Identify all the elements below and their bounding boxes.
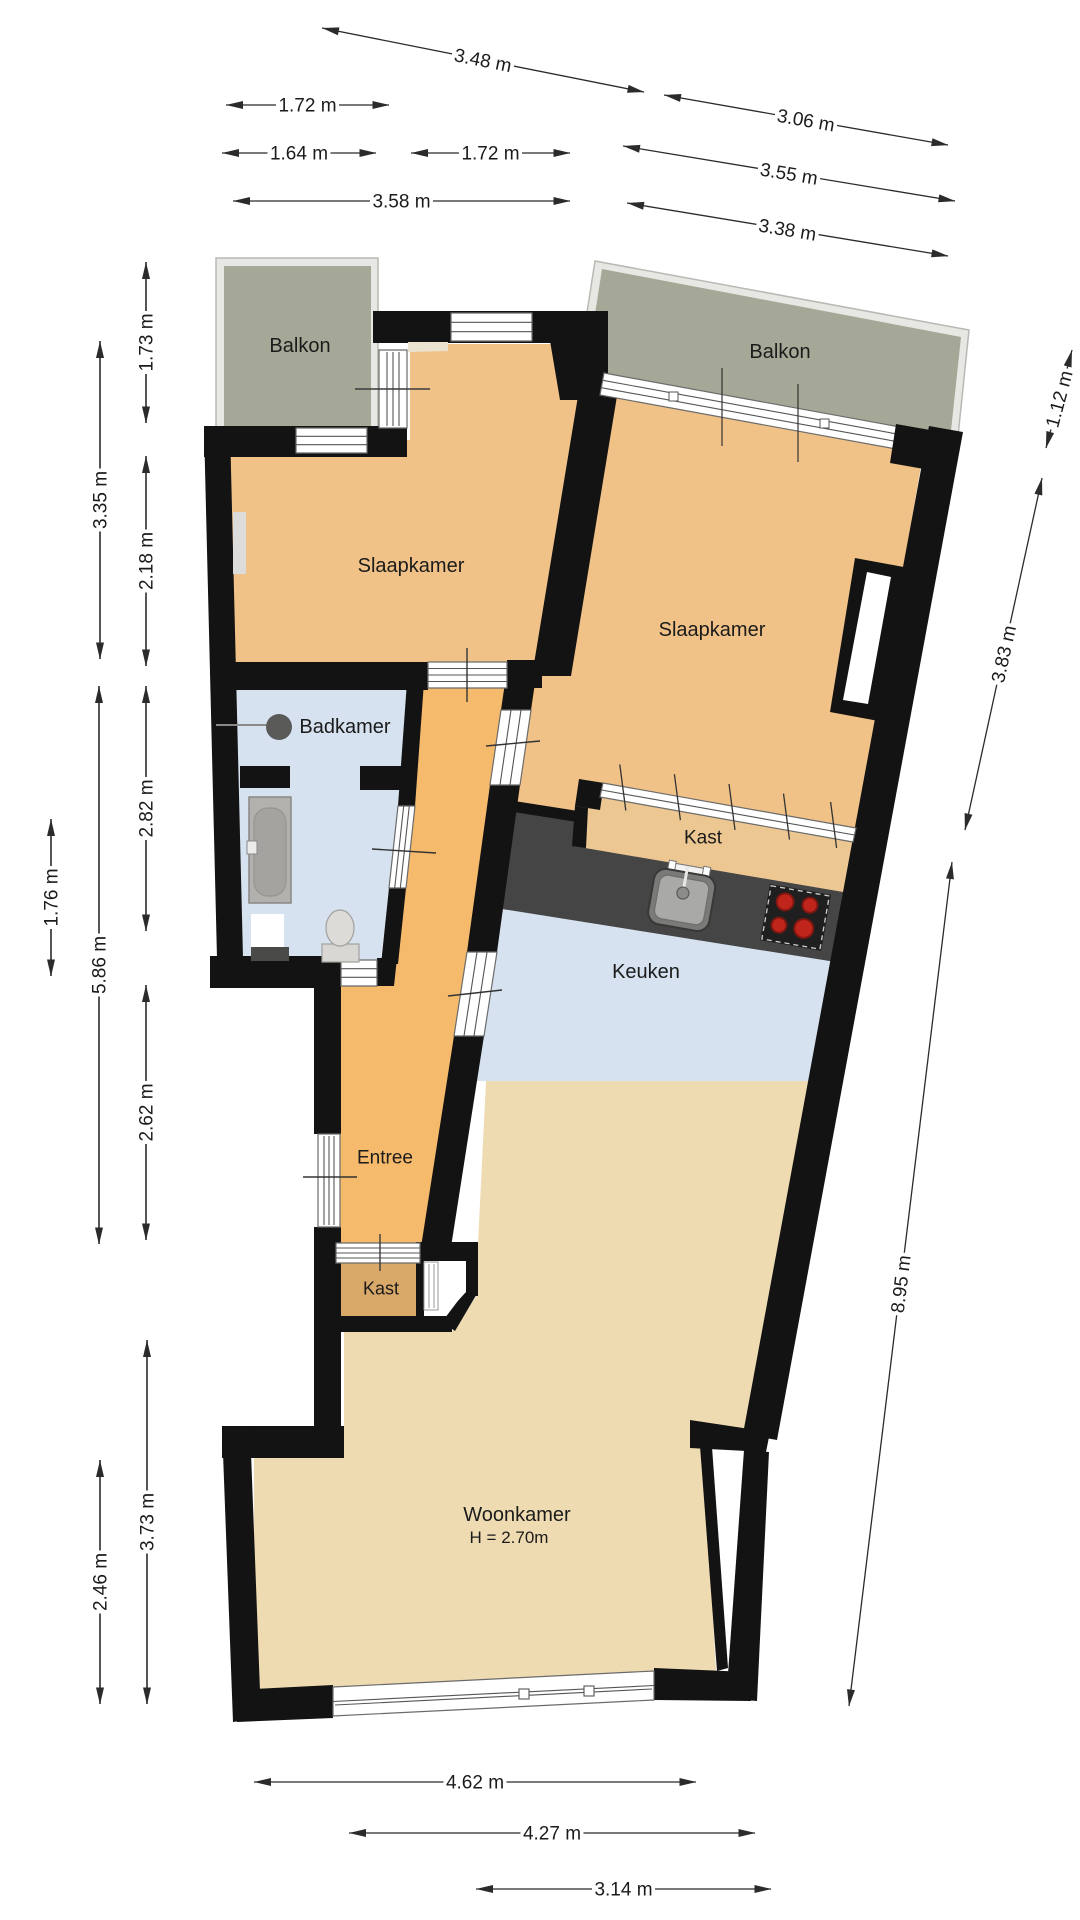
svg-text:2.18 m: 2.18 m: [137, 532, 158, 590]
svg-text:H = 2.70m: H = 2.70m: [470, 1528, 549, 1547]
svg-text:1.72 m: 1.72 m: [461, 144, 519, 165]
svg-text:Slaapkamer: Slaapkamer: [358, 555, 465, 577]
svg-text:Balkon: Balkon: [269, 335, 330, 357]
svg-text:3.35 m: 3.35 m: [91, 471, 112, 529]
svg-text:Keuken: Keuken: [612, 961, 680, 983]
svg-text:1.73 m: 1.73 m: [137, 313, 158, 371]
svg-text:1.76 m: 1.76 m: [42, 868, 63, 926]
svg-text:Kast: Kast: [684, 828, 723, 849]
svg-text:1.72 m: 1.72 m: [278, 96, 336, 117]
svg-text:Balkon: Balkon: [749, 341, 810, 363]
svg-text:3.58 m: 3.58 m: [372, 192, 430, 213]
svg-text:2.82 m: 2.82 m: [137, 779, 158, 837]
svg-text:2.62 m: 2.62 m: [137, 1083, 158, 1141]
svg-text:3.73 m: 3.73 m: [138, 1493, 159, 1551]
svg-text:4.27 m: 4.27 m: [523, 1824, 581, 1845]
svg-text:4.62 m: 4.62 m: [446, 1773, 504, 1794]
svg-text:3.14 m: 3.14 m: [594, 1880, 652, 1901]
svg-text:1.64 m: 1.64 m: [270, 144, 328, 165]
svg-text:Entree: Entree: [357, 1148, 413, 1169]
svg-text:Slaapkamer: Slaapkamer: [659, 619, 766, 641]
svg-text:2.46 m: 2.46 m: [91, 1553, 112, 1611]
svg-text:5.86 m: 5.86 m: [90, 936, 111, 994]
svg-text:Badkamer: Badkamer: [299, 716, 390, 738]
svg-text:Kast: Kast: [363, 1278, 399, 1298]
svg-text:Woonkamer: Woonkamer: [463, 1504, 571, 1526]
